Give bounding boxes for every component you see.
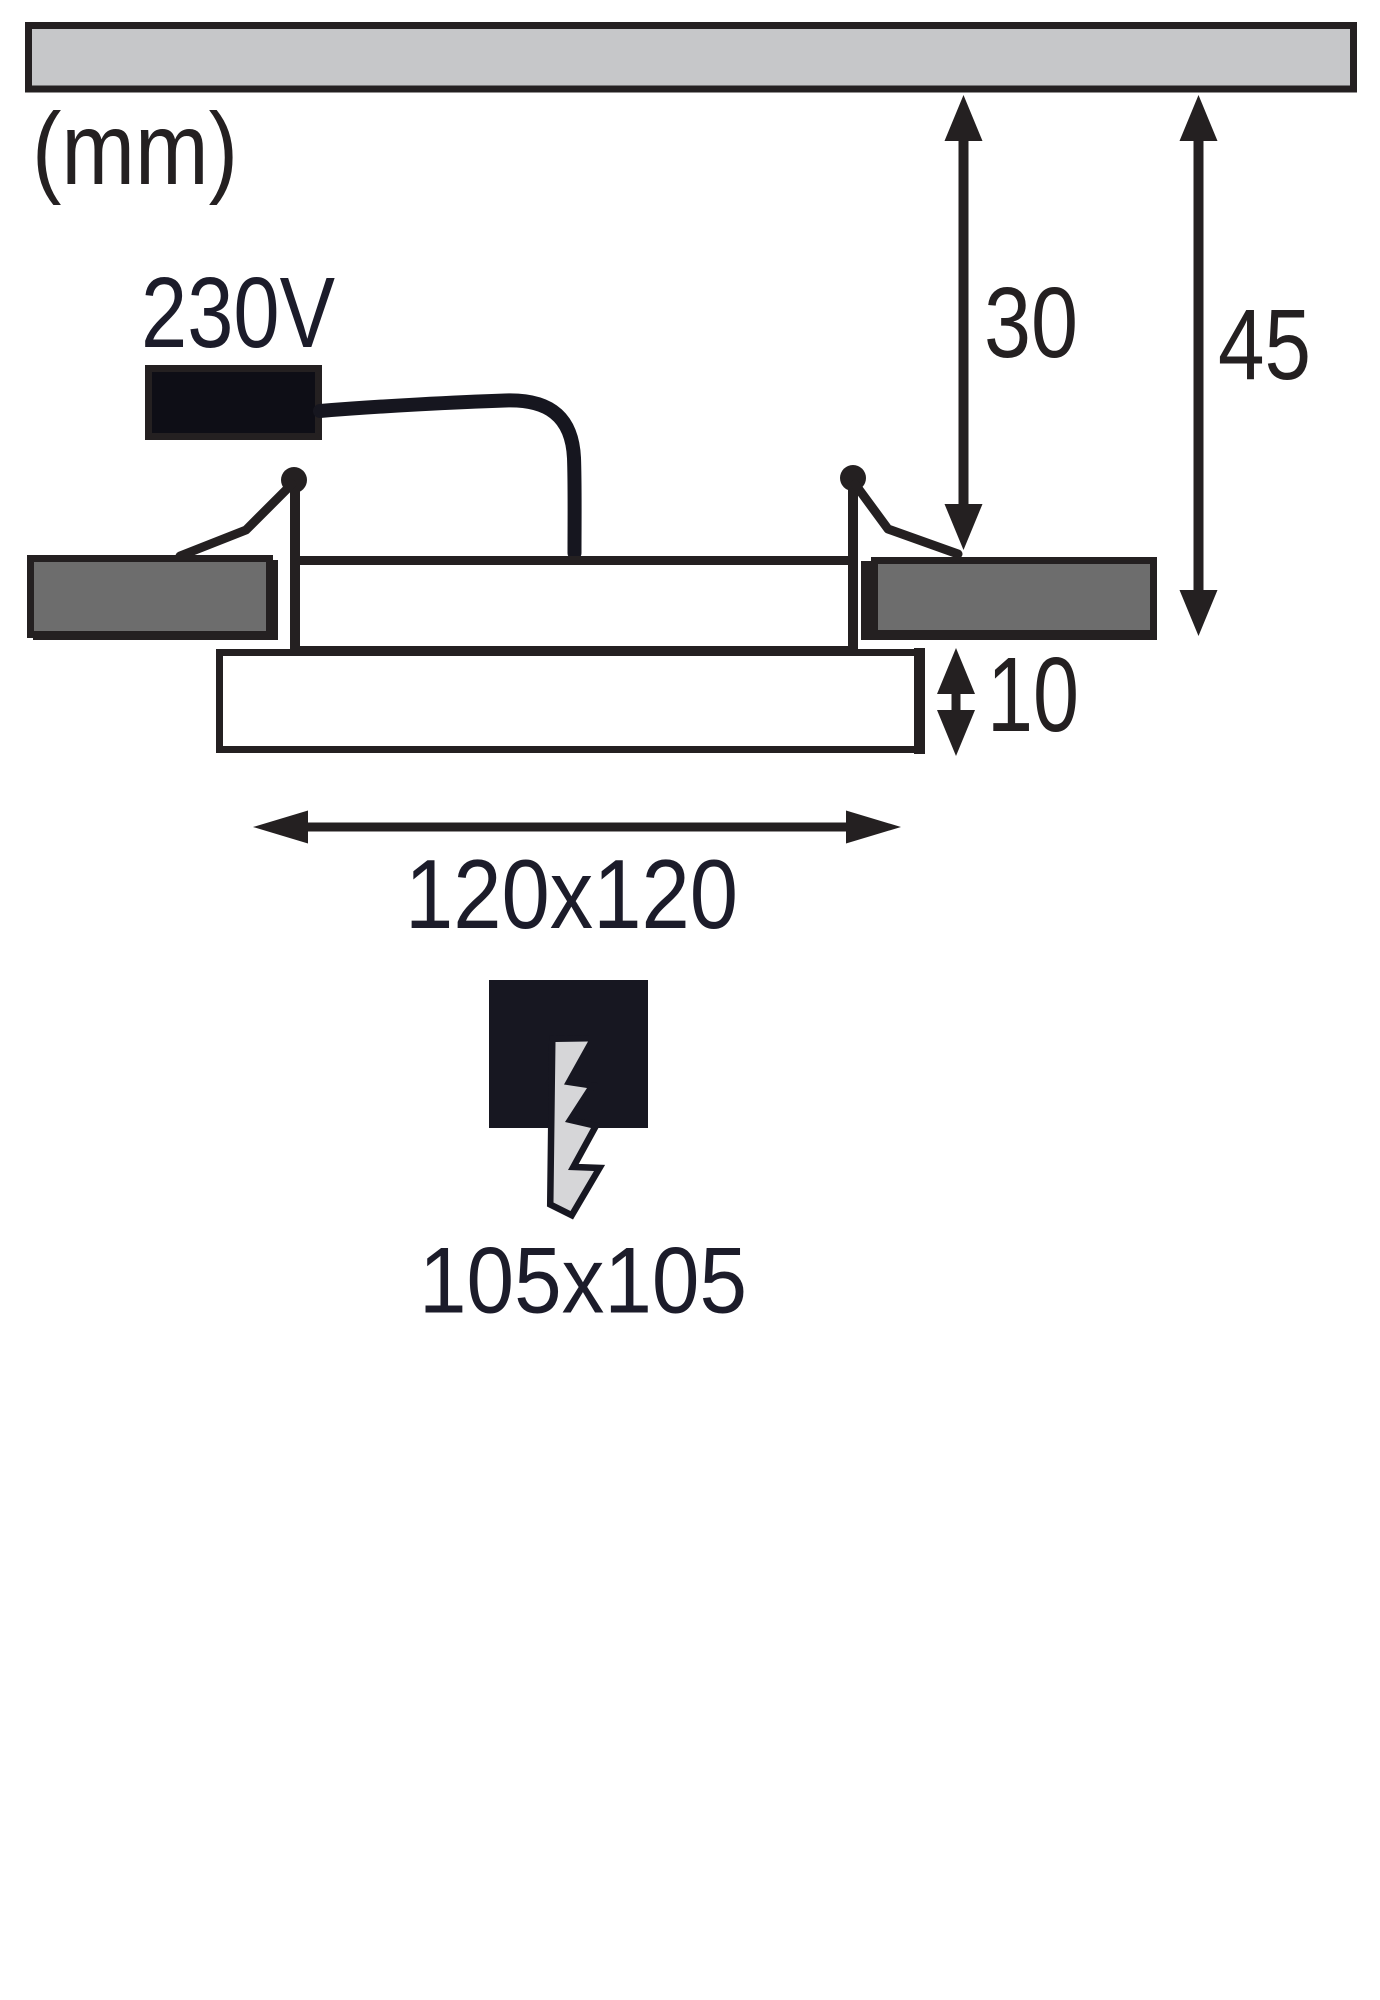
svg-text:10: 10 [987, 636, 1079, 754]
svg-text:105x105: 105x105 [419, 1228, 747, 1333]
svg-text:230V: 230V [141, 257, 335, 369]
svg-text:45: 45 [1218, 289, 1311, 401]
svg-text:120x120: 120x120 [405, 839, 738, 949]
svg-text:(mm): (mm) [32, 92, 238, 206]
svg-text:30: 30 [984, 267, 1078, 379]
